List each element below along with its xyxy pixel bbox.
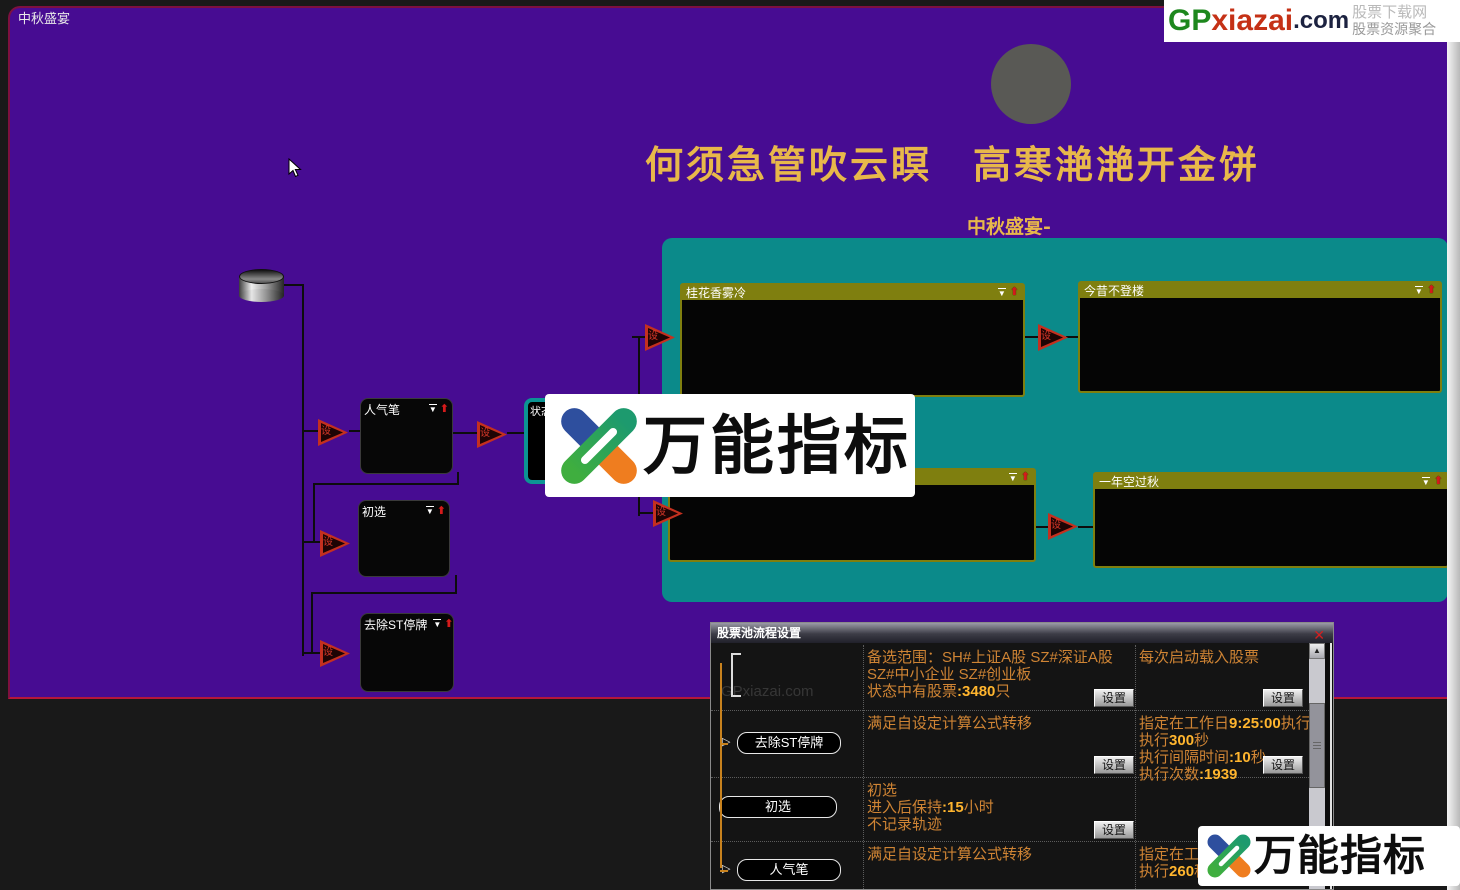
watermark-center: 万能指标 bbox=[545, 394, 915, 497]
pool-box-titlebar: 今昔不登楼▼⬆ bbox=[1080, 283, 1440, 298]
flow-node-titlebar: 人气笔▼⬆ bbox=[361, 399, 452, 419]
dropdown-icon[interactable]: ▼ bbox=[429, 404, 437, 414]
flow-node-1[interactable]: 人气笔▼⬆ bbox=[360, 398, 453, 474]
move-up-icon[interactable]: ⬆ bbox=[1427, 285, 1436, 296]
settings-button[interactable]: 设置 bbox=[1263, 756, 1303, 774]
flow-line bbox=[451, 432, 477, 434]
dropdown-icon[interactable]: ▼ bbox=[1422, 477, 1430, 487]
watermark-bottom-right: 万能指标 bbox=[1198, 826, 1460, 886]
flow-connector-line bbox=[720, 663, 722, 868]
dialog-titlebar[interactable]: 股票池流程设置 ✕ bbox=[711, 623, 1333, 643]
flow-node-2[interactable]: 初选▼⬆ bbox=[358, 500, 450, 577]
flow-line bbox=[313, 483, 315, 543]
connector-triangle-icon[interactable]: 设 bbox=[320, 530, 350, 557]
connector-triangle-icon[interactable]: 设 bbox=[645, 324, 675, 351]
pool-box-title: 一年空过秋 bbox=[1099, 474, 1159, 489]
cylinder-top bbox=[239, 269, 284, 284]
dialog-mid-text: 满足自设定计算公式转移 bbox=[867, 846, 1032, 863]
mouse-cursor bbox=[288, 158, 302, 178]
wanneng-logo-icon bbox=[1204, 829, 1254, 883]
scrollbar-thumb[interactable] bbox=[1309, 703, 1325, 788]
connector-triangle-icon[interactable]: 设 bbox=[477, 421, 507, 448]
move-up-icon[interactable]: ⬆ bbox=[1434, 476, 1443, 487]
connector-triangle-icon[interactable]: 设 bbox=[320, 640, 350, 667]
flow-line bbox=[1078, 526, 1093, 528]
gpxiazai-logo[interactable]: GPxiazai.com 股票下载网 股票资源聚合 bbox=[1164, 0, 1460, 42]
flow-line bbox=[311, 592, 313, 654]
pool-box-1[interactable]: 桂花香雾冷▼⬆ bbox=[680, 283, 1025, 397]
dialog-node-button[interactable]: 初选 bbox=[719, 796, 837, 818]
flow-line bbox=[507, 432, 525, 434]
close-icon[interactable]: ✕ bbox=[1313, 625, 1325, 645]
screen: 中秋盛宴 何须急管吹云瞑 高寒滟滟开金饼 中秋盛宴- 设设设设设设设设 人气笔▼… bbox=[0, 0, 1460, 890]
watermark-text: 万能指标 bbox=[1254, 835, 1426, 877]
dialog-title: 股票池流程设置 bbox=[717, 626, 801, 640]
pool-box-titlebar: 桂花香雾冷▼⬆ bbox=[682, 285, 1023, 300]
moon-circle bbox=[991, 44, 1071, 124]
flow-node-label: 人气笔 bbox=[364, 401, 400, 418]
dropdown-icon[interactable]: ▼ bbox=[1009, 473, 1017, 483]
poem-text: 何须急管吹云瞑 高寒滟滟开金饼 bbox=[645, 134, 1260, 189]
flow-node-titlebar: 初选▼⬆ bbox=[359, 501, 449, 521]
triangle-glyph: 设 bbox=[323, 648, 333, 658]
wanneng-logo-icon bbox=[555, 400, 643, 492]
pool-box-2[interactable]: 今昔不登楼▼⬆ bbox=[1078, 281, 1442, 393]
window-right-edge[interactable] bbox=[1447, 42, 1460, 890]
scroll-up-icon[interactable]: ▲ bbox=[1309, 643, 1325, 659]
watermark-text: 万能指标 bbox=[643, 414, 911, 478]
flow-line bbox=[304, 430, 318, 432]
dropdown-icon[interactable]: ▼ bbox=[433, 619, 441, 629]
triangle-glyph: 设 bbox=[323, 538, 333, 548]
flow-line bbox=[313, 483, 459, 485]
brand-gp: GP bbox=[1168, 6, 1211, 36]
triangle-glyph: 设 bbox=[480, 429, 490, 439]
dialog-mid-text: 初选进入后保持:15小时不记录轨迹 bbox=[867, 782, 994, 833]
dialog-right-text: 每次启动载入股票 bbox=[1139, 649, 1259, 666]
pool-box-title: 今昔不登楼 bbox=[1084, 283, 1144, 298]
settings-button[interactable]: 设置 bbox=[1094, 756, 1134, 774]
triangle-glyph: 设 bbox=[1051, 521, 1061, 531]
connector-triangle-icon[interactable]: 设 bbox=[318, 419, 348, 446]
poem-subtitle: 中秋盛宴- bbox=[967, 212, 1051, 239]
flow-connector-line bbox=[720, 870, 728, 872]
window-title: 中秋盛宴 bbox=[18, 8, 70, 27]
connector-triangle-icon[interactable]: 设 bbox=[1048, 513, 1078, 540]
settings-button[interactable]: 设置 bbox=[1094, 689, 1134, 707]
flow-line bbox=[311, 592, 457, 594]
connector-triangle-icon[interactable]: 设 bbox=[653, 500, 683, 527]
move-up-icon[interactable]: ⬆ bbox=[1010, 287, 1019, 298]
flow-node-label: 初选 bbox=[362, 503, 386, 520]
dialog-mid-text: 满足自设定计算公式转移 bbox=[867, 715, 1032, 732]
flow-node-titlebar: 去除ST停牌▼⬆ bbox=[361, 614, 453, 634]
dropdown-icon[interactable]: ▼ bbox=[1415, 286, 1423, 296]
dropdown-icon[interactable]: ▼ bbox=[426, 506, 434, 516]
move-up-icon[interactable]: ⬆ bbox=[1021, 472, 1030, 483]
dialog-node-button[interactable]: 去除ST停牌 bbox=[737, 732, 841, 754]
flow-connector-line bbox=[720, 743, 728, 745]
brand-tagline-1: 股票下载网 bbox=[1352, 5, 1436, 22]
flow-node-3[interactable]: 去除ST停牌▼⬆ bbox=[360, 613, 454, 692]
triangle-glyph: 设 bbox=[1041, 332, 1051, 342]
settings-button[interactable]: 设置 bbox=[1094, 821, 1134, 839]
flow-node-label: 去除ST停牌 bbox=[364, 616, 427, 633]
connector-triangle-icon[interactable]: 设 bbox=[1038, 324, 1068, 351]
dialog-node-button[interactable]: 人气笔 bbox=[737, 859, 841, 881]
flow-line bbox=[304, 541, 320, 543]
triangle-glyph: 设 bbox=[648, 332, 658, 342]
flow-line bbox=[640, 512, 653, 514]
flow-line bbox=[284, 284, 303, 286]
dialog-mid-text: 备选范围：SH#上证A股 SZ#深证A股SZ#中小企业 SZ#创业板状态中有股票… bbox=[867, 649, 1113, 700]
settings-button[interactable]: 设置 bbox=[1263, 689, 1303, 707]
triangle-glyph: 设 bbox=[321, 427, 331, 437]
flow-line bbox=[302, 284, 304, 656]
triangle-glyph: 设 bbox=[656, 508, 666, 518]
flow-line bbox=[349, 430, 360, 432]
brand-xiazai: xiazai bbox=[1211, 6, 1293, 36]
brand-taglines: 股票下载网 股票资源聚合 bbox=[1352, 5, 1436, 37]
pool-box-titlebar: 一年空过秋▼⬆ bbox=[1095, 474, 1447, 489]
dropdown-icon[interactable]: ▼ bbox=[998, 288, 1006, 298]
cylinder-bottom bbox=[239, 289, 284, 302]
brand-dotcom: .com bbox=[1293, 7, 1349, 35]
move-up-icon[interactable]: ⬆ bbox=[440, 404, 449, 415]
move-up-icon[interactable]: ⬆ bbox=[444, 619, 453, 630]
brand-tagline-2: 股票资源聚合 bbox=[1352, 22, 1436, 37]
move-up-icon[interactable]: ⬆ bbox=[437, 506, 446, 517]
pool-box-title: 桂花香雾冷 bbox=[686, 285, 746, 300]
database-cylinder-icon[interactable] bbox=[239, 269, 284, 301]
pool-box-4[interactable]: 一年空过秋▼⬆ bbox=[1093, 472, 1449, 568]
